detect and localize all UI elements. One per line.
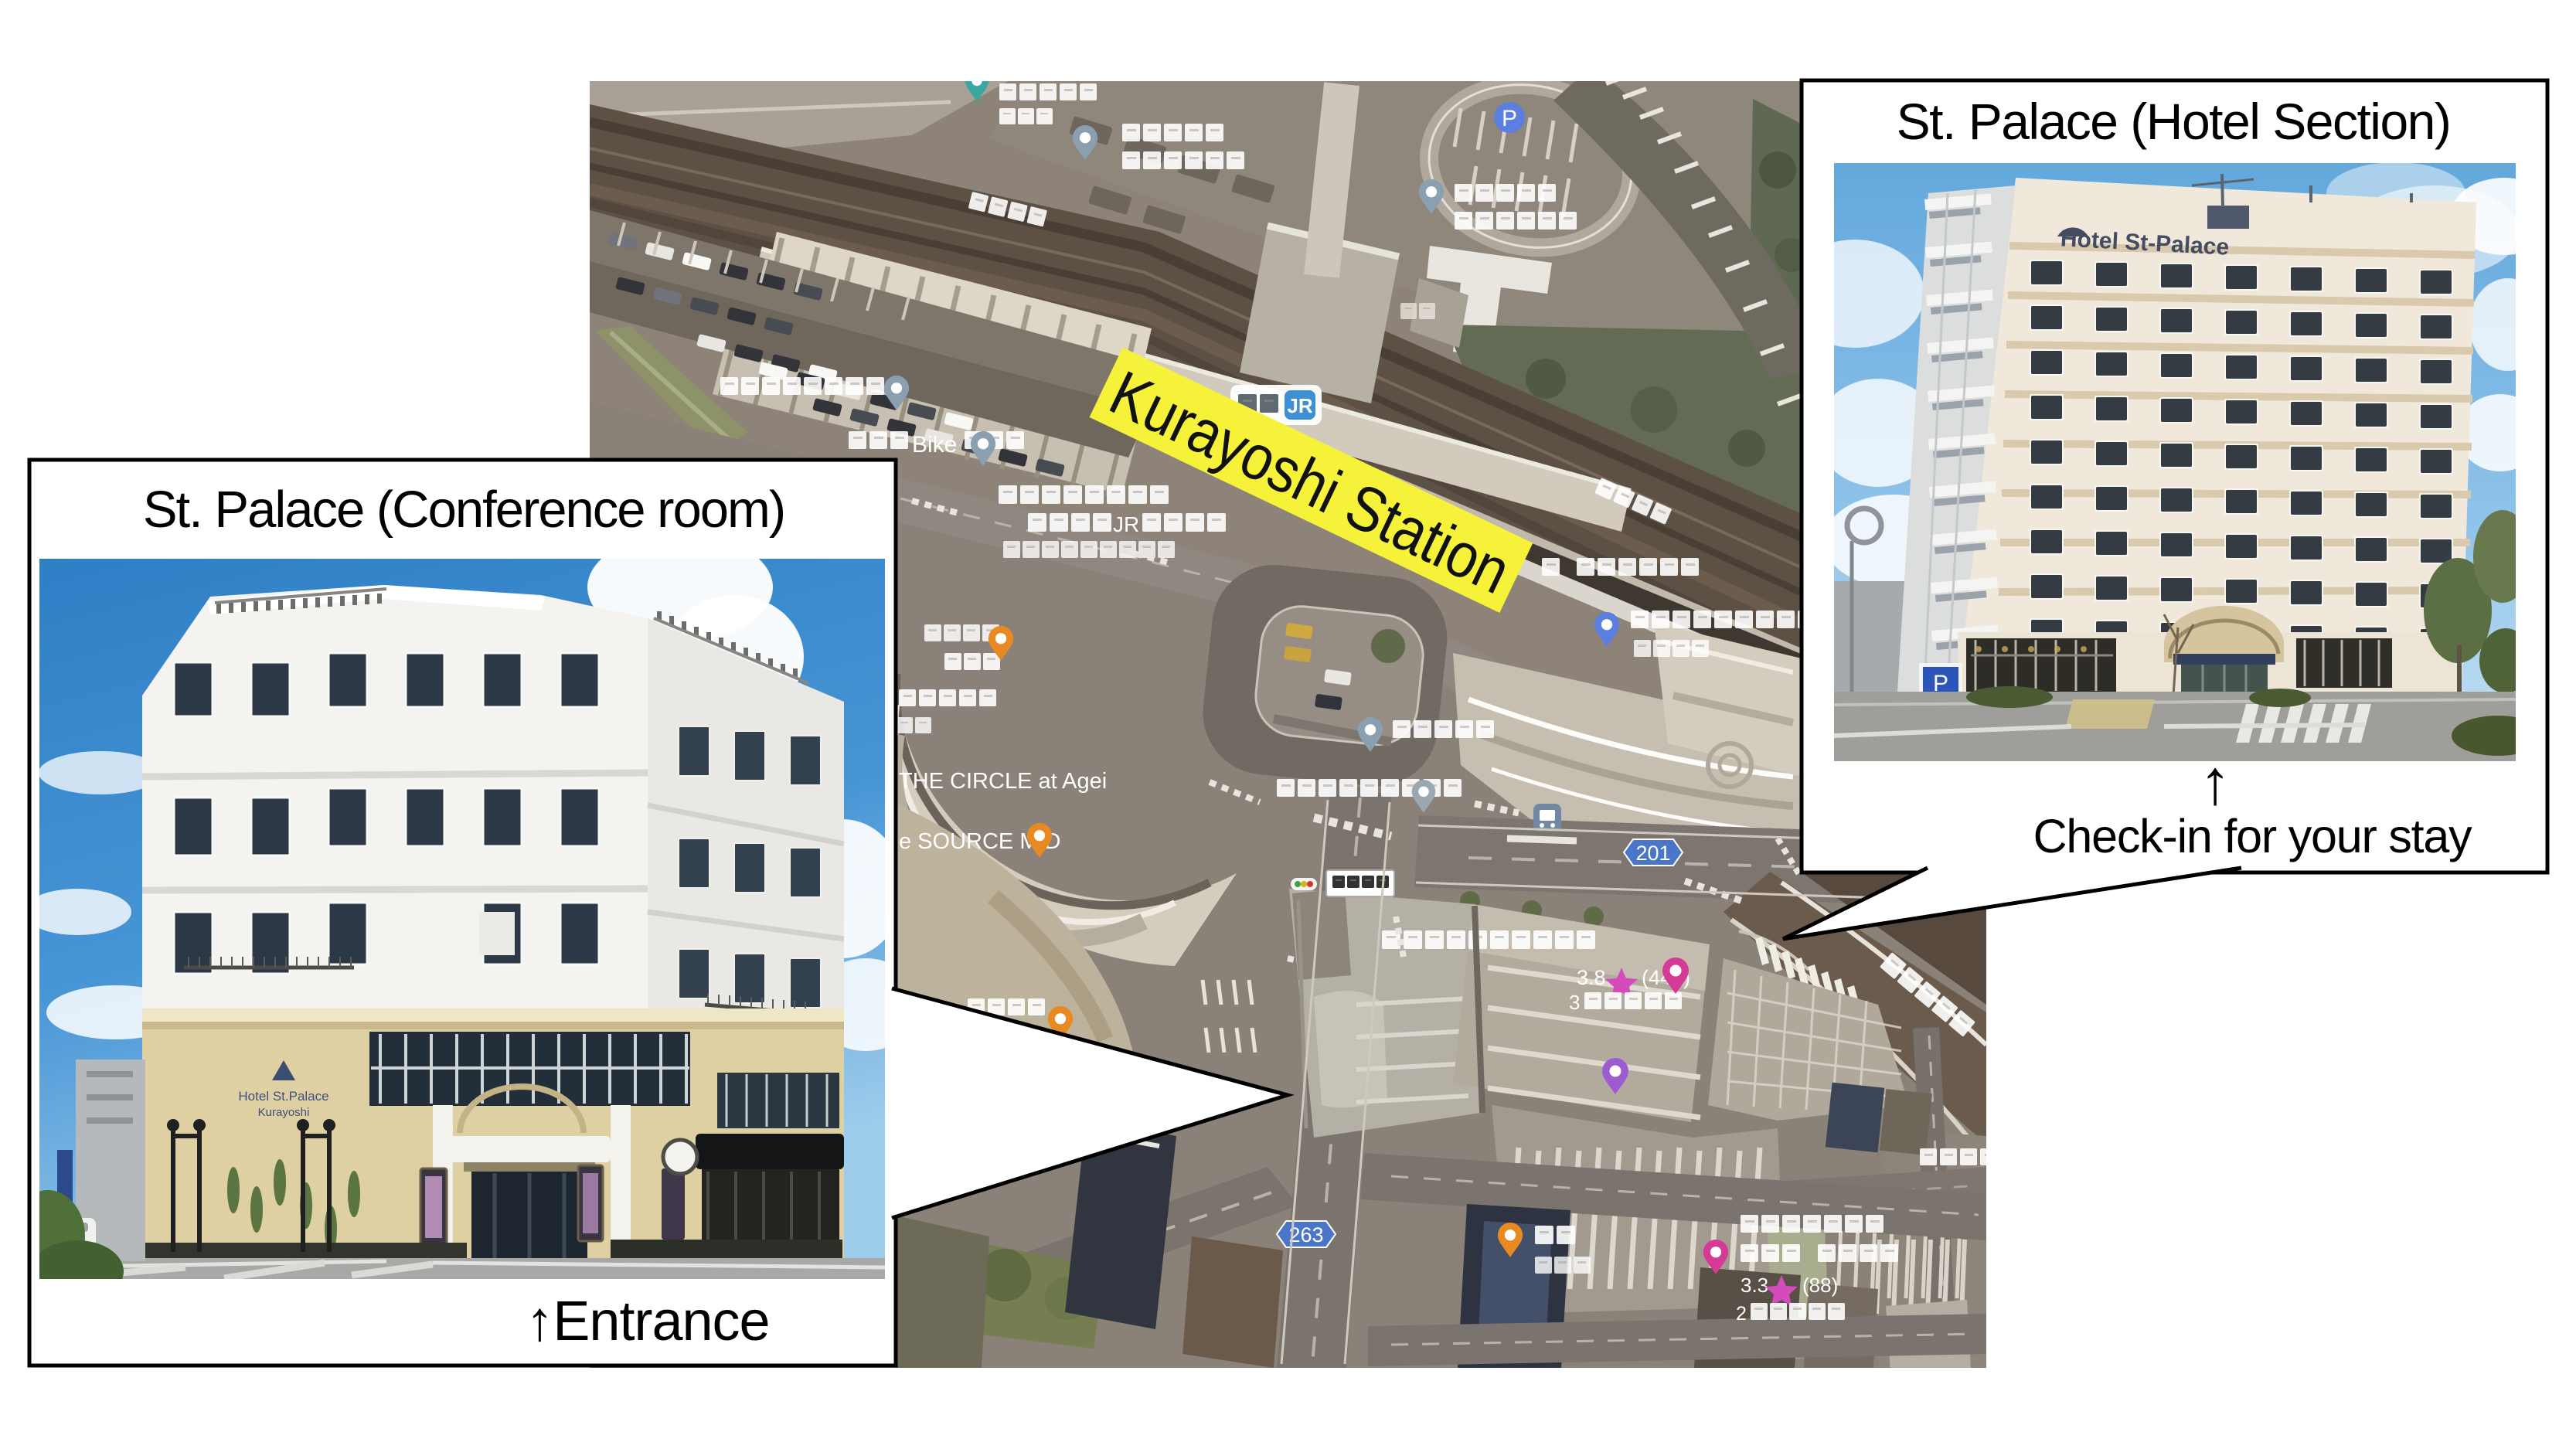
svg-text:2: 2: [1736, 1303, 1747, 1325]
svg-text:Kurayoshi: Kurayoshi: [258, 1106, 310, 1119]
svg-text:Hotel St.Palace: Hotel St.Palace: [238, 1089, 328, 1104]
svg-text:JR: JR: [1287, 394, 1312, 417]
svg-text:Bike: Bike: [912, 432, 957, 457]
svg-text:3.3: 3.3: [1741, 1274, 1768, 1297]
svg-text:↑Entrance: ↑Entrance: [526, 1291, 769, 1352]
svg-text:263: 263: [1288, 1223, 1323, 1247]
svg-text:St. Palace (Conference room): St. Palace (Conference room): [143, 481, 784, 539]
svg-text:P: P: [1502, 106, 1517, 131]
svg-text:St. Palace (Hotel Section): St. Palace (Hotel Section): [1897, 93, 2451, 150]
svg-text:(88): (88): [1802, 1274, 1838, 1297]
svg-text:JR: JR: [1113, 512, 1139, 536]
svg-text:201: 201: [1635, 842, 1670, 865]
svg-text:↑: ↑: [2200, 747, 2231, 818]
svg-text:3.8: 3.8: [1577, 966, 1606, 989]
svg-text:THE CIRCLE at Agei: THE CIRCLE at Agei: [899, 769, 1107, 794]
svg-text:Check-in for your stay: Check-in for your stay: [2033, 810, 2473, 862]
svg-text:3: 3: [1569, 991, 1580, 1014]
